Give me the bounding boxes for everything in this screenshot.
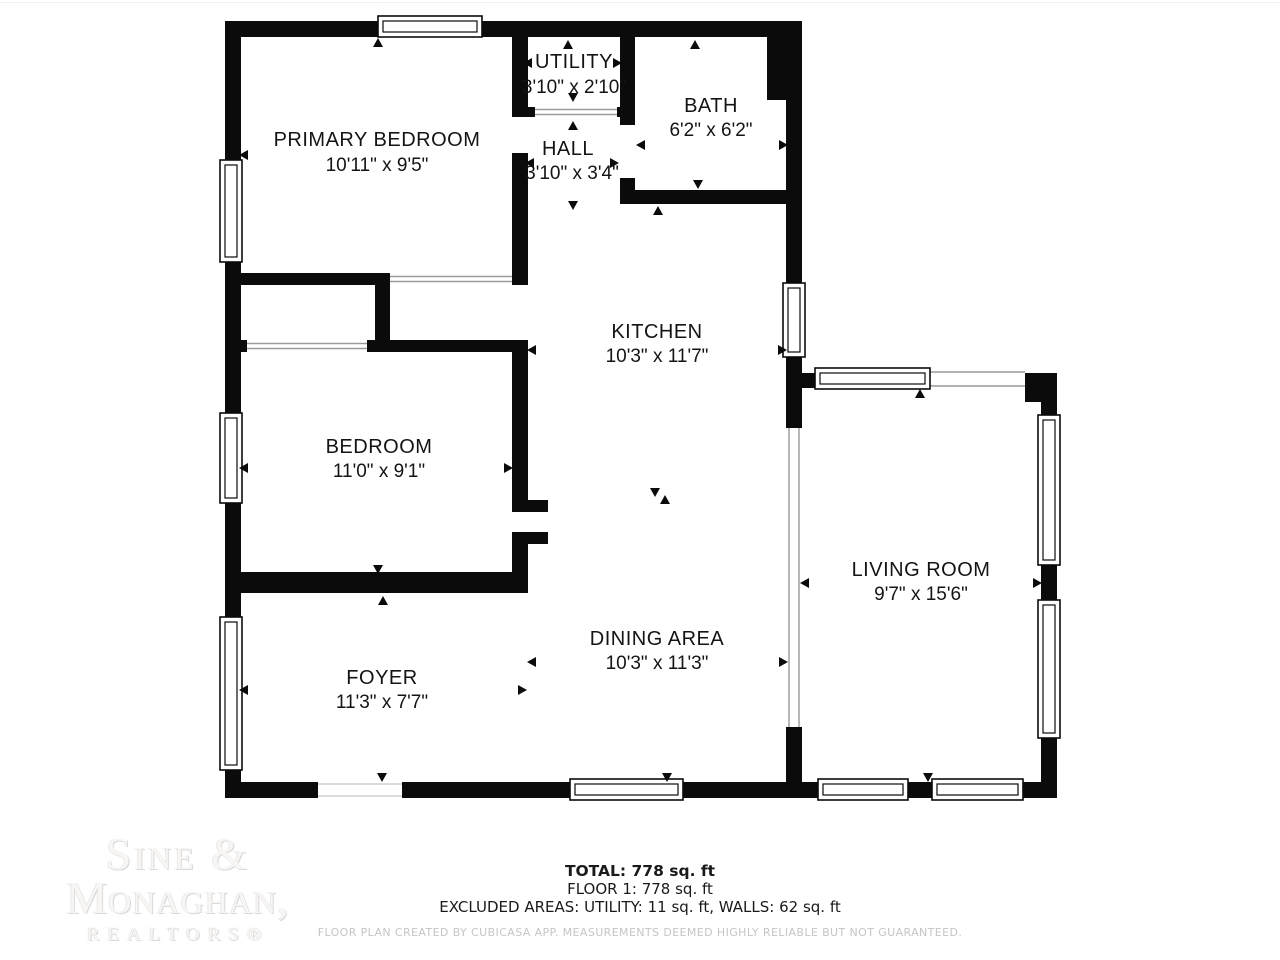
room-dims-foyer: 11'3" x 7'7" xyxy=(336,692,428,713)
window xyxy=(1038,600,1060,738)
room-dims-utility: 3'10" x 2'10" xyxy=(522,77,626,98)
window xyxy=(818,779,908,800)
window xyxy=(815,368,930,389)
room-label-utility: UTILITY xyxy=(535,51,613,73)
room-label-dining-area: DINING AREA xyxy=(590,628,725,650)
excluded-areas: EXCLUDED AREAS: UTILITY: 11 sq. ft, WALL… xyxy=(0,898,1280,916)
disclaimer: FLOOR PLAN CREATED BY CUBICASA APP. MEAS… xyxy=(0,926,1280,940)
room-label-bath: BATH xyxy=(684,95,738,117)
floor-area: FLOOR 1: 778 sq. ft xyxy=(0,880,1280,898)
room-dims-hall: 3'10" x 3'4" xyxy=(525,163,619,184)
window xyxy=(220,413,242,503)
room-label-primary-bedroom: PRIMARY BEDROOM xyxy=(274,129,481,151)
room-label-hall: HALL xyxy=(542,138,594,160)
room-label-kitchen: KITCHEN xyxy=(611,321,702,343)
area-summary: TOTAL: 778 sq. ft FLOOR 1: 778 sq. ft EX… xyxy=(0,862,1280,940)
window xyxy=(570,779,683,800)
room-dims-bath: 6'2" x 6'2" xyxy=(669,120,752,141)
window xyxy=(932,779,1023,800)
floor-plan-drawing: PRIMARY BEDROOM 10'11" x 9'5" UTILITY 3'… xyxy=(0,0,1280,960)
window xyxy=(220,617,242,770)
room-label-bedroom: BEDROOM xyxy=(326,436,433,458)
room-dims-dining-area: 10'3" x 11'3" xyxy=(606,653,709,674)
window xyxy=(378,16,482,37)
floor-plan-page: PRIMARY BEDROOM 10'11" x 9'5" UTILITY 3'… xyxy=(0,0,1280,960)
window xyxy=(783,283,805,357)
front-door-opening xyxy=(318,780,402,800)
window xyxy=(1038,415,1060,565)
room-label-foyer: FOYER xyxy=(346,667,417,689)
room-dims-primary-bedroom: 10'11" x 9'5" xyxy=(326,155,429,176)
total-area: TOTAL: 778 sq. ft xyxy=(0,862,1280,880)
living-room-opening xyxy=(930,370,1025,390)
window xyxy=(220,160,242,262)
room-dims-kitchen: 10'3" x 11'7" xyxy=(606,346,709,367)
room-dims-bedroom: 11'0" x 9'1" xyxy=(333,461,425,482)
room-dims-living-room: 9'7" x 15'6" xyxy=(874,584,968,605)
room-label-living-room: LIVING ROOM xyxy=(852,559,991,581)
